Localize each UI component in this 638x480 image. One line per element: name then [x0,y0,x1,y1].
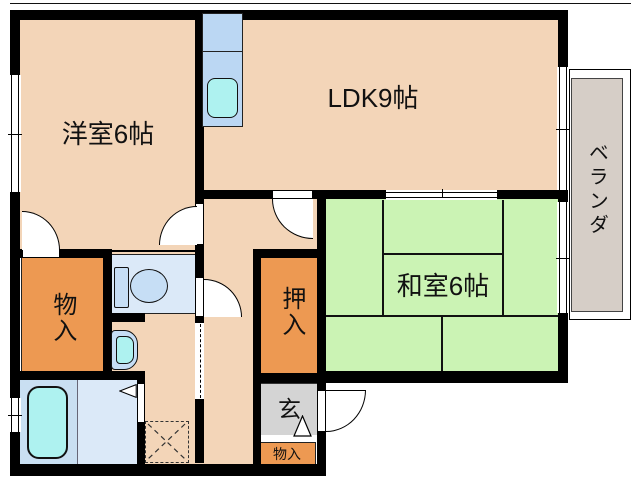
door-swing-entrance [326,390,366,432]
tatami-line [382,253,504,255]
window-bathroom-left [9,398,21,432]
wall-closet-top [253,249,318,258]
storage-left-label: 物入 [48,292,75,344]
oshiire-closet-label: 押入 [277,286,304,338]
wall-toilet-bottom [103,313,145,322]
storage-entrance-label: 物入 [258,447,316,463]
window-japanese-veranda [557,202,569,313]
ldk-label: LDK9帖 [318,84,428,113]
door-storage-left [22,249,60,258]
japanese-room-label: 和室6帖 [383,272,503,301]
sliding-door-tick [442,189,443,197]
sliding-door-ldk-japanese [386,190,497,200]
western-room-label: 洋室6帖 [48,120,168,149]
wall-bottom [10,464,326,476]
wall-washroom-bath [10,371,145,380]
wall-hall-ldk-a [204,190,272,199]
kitchen-sink-icon [207,78,238,118]
pan-cross-lines [146,422,187,461]
veranda-label: ベランダ [585,142,607,238]
wall-japanese-bottom [317,371,568,383]
kitchen-counter-divider [203,51,242,52]
door-toilet [195,277,204,317]
wall-japanese-left [317,190,326,383]
washing-machine-pan-icon [145,421,189,463]
window-ldk-veranda [557,67,569,190]
kitchen-unit [202,13,243,127]
wall-closet-genkan [253,373,318,383]
window-western-left [9,75,21,192]
washbasin-bowl [116,336,134,364]
entrance-label: 玄 [278,397,301,423]
toilet-bowl-icon [130,269,168,303]
bath-door-triangle-icon [119,384,137,398]
bathtub-icon [27,386,68,459]
floorplan-canvas: 洋室6帖 LDK9帖 和室6帖 ベランダ 物入 押入 玄 物入 [0,0,638,480]
washbasin-icon [111,330,138,370]
door-bathroom-gap [137,383,145,423]
wall-hall-closet [253,249,261,464]
door-ldk-hallway [272,190,313,199]
toilet-tank-icon [114,267,129,308]
building-outline-top [10,3,631,4]
door-entrance-front [317,390,326,432]
sliding-door-washroom [195,323,204,399]
wall-hall-ldk-c [497,190,568,199]
tatami-line [441,317,443,373]
wall-toilet-top-line [111,250,197,252]
wall-top [10,10,568,20]
